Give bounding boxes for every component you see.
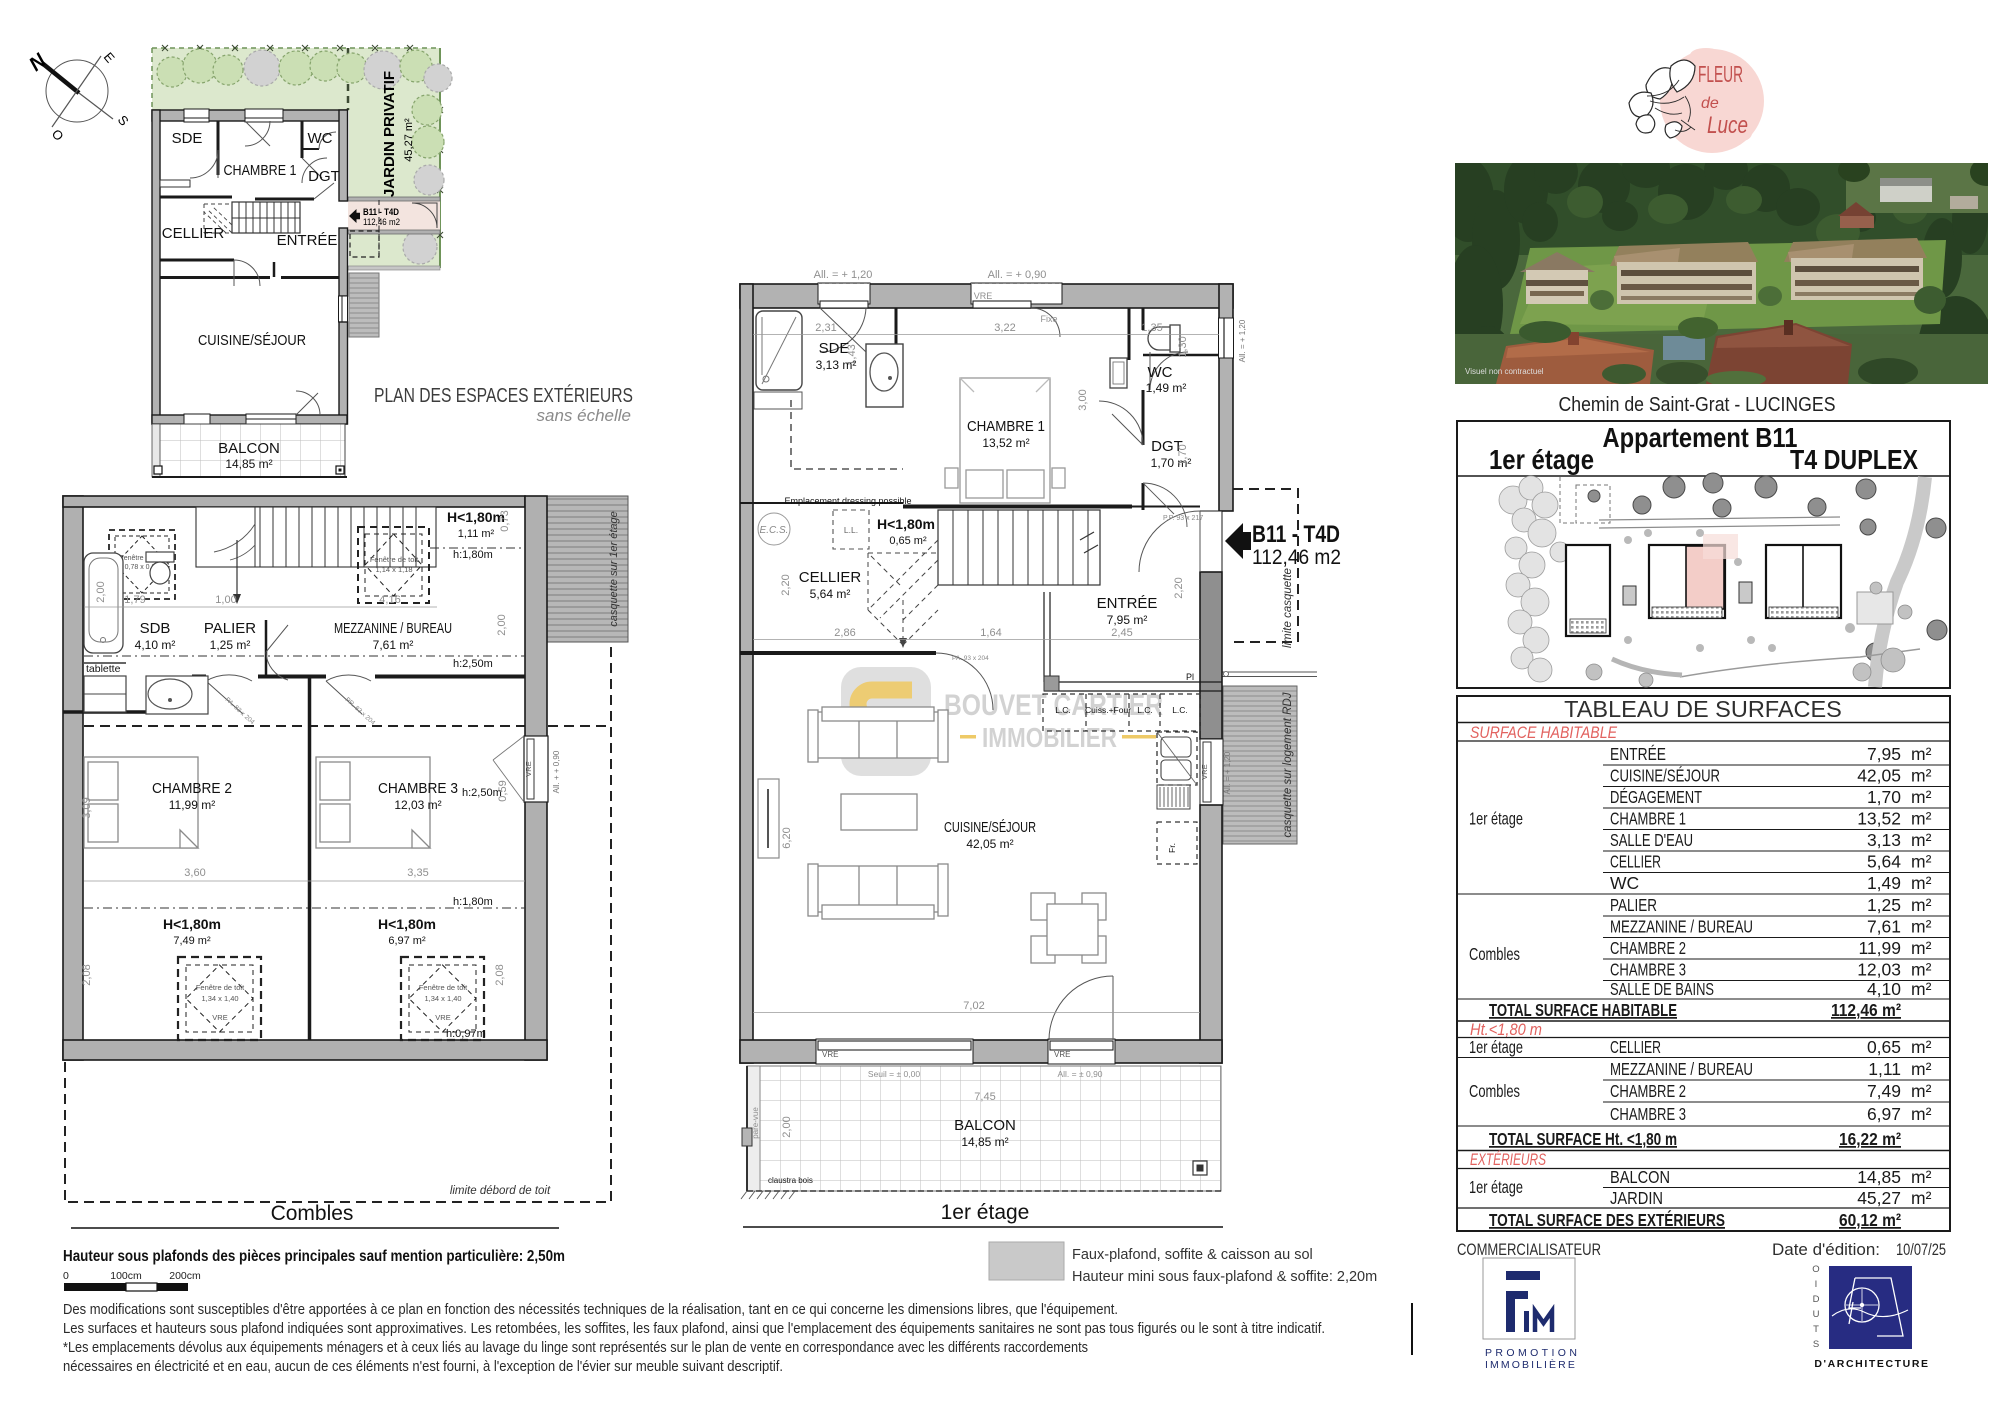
svg-text:CUISINE/SÉJOUR: CUISINE/SÉJOUR bbox=[1610, 766, 1720, 786]
svg-text:Emplacement dressing possible: Emplacement dressing possible bbox=[784, 496, 911, 506]
svg-text:SDE: SDE bbox=[172, 130, 203, 147]
svg-text:EXTÉRIEURS: EXTÉRIEURS bbox=[1470, 1150, 1546, 1169]
svg-text:TOTAL SURFACE DES EXTÉRIEURS: TOTAL SURFACE DES EXTÉRIEURS bbox=[1489, 1209, 1725, 1230]
svg-text:7,45: 7,45 bbox=[974, 1091, 995, 1103]
svg-text:1er étage: 1er étage bbox=[1469, 1177, 1523, 1197]
svg-text:1,14 x 1,18: 1,14 x 1,18 bbox=[375, 565, 412, 574]
svg-text:CUISINE/SÉJOUR: CUISINE/SÉJOUR bbox=[944, 819, 1036, 836]
svg-text:TOTAL SURFACE Ht. <1,80 m: TOTAL SURFACE Ht. <1,80 m bbox=[1489, 1129, 1677, 1149]
svg-text:m²: m² bbox=[1911, 1081, 1932, 1101]
svg-text:Cuiss.+Four: Cuiss.+Four bbox=[1085, 705, 1131, 715]
svg-text:m²: m² bbox=[1911, 960, 1932, 980]
svg-text:CELLIER: CELLIER bbox=[1610, 1037, 1661, 1057]
svg-text:U: U bbox=[1813, 1309, 1820, 1320]
svg-text:CHAMBRE 3: CHAMBRE 3 bbox=[1610, 1104, 1686, 1124]
svg-text:SURFACE HABITABLE: SURFACE HABITABLE bbox=[1470, 724, 1618, 742]
svg-text:limite casquette: limite casquette bbox=[1282, 568, 1294, 648]
svg-text:3,00: 3,00 bbox=[1077, 389, 1089, 410]
svg-text:2,86: 2,86 bbox=[834, 627, 855, 639]
svg-text:Fenêtre de toit: Fenêtre de toit bbox=[419, 983, 468, 992]
svg-text:L.C.: L.C. bbox=[1055, 705, 1071, 715]
svg-text:7,61 m²: 7,61 m² bbox=[373, 638, 414, 652]
svg-text:13,52 m²: 13,52 m² bbox=[982, 436, 1029, 450]
svg-text:m²: m² bbox=[1911, 830, 1932, 850]
svg-text:1er étage: 1er étage bbox=[1469, 809, 1523, 829]
svg-text:Date d'édition:: Date d'édition: bbox=[1772, 1240, 1880, 1259]
svg-text:6,20: 6,20 bbox=[781, 827, 793, 848]
svg-text:1,34 x 1,40: 1,34 x 1,40 bbox=[424, 994, 461, 1003]
svg-text:VRE: VRE bbox=[1054, 1050, 1070, 1059]
svg-text:m²: m² bbox=[1911, 1188, 1932, 1208]
svg-text:m²: m² bbox=[1911, 938, 1932, 958]
svg-text:6,97 m²: 6,97 m² bbox=[388, 935, 426, 947]
svg-text:Chemin de Saint-Grat - LUCINGE: Chemin de Saint-Grat - LUCINGES bbox=[1559, 394, 1836, 416]
svg-text:4,16: 4,16 bbox=[379, 594, 400, 606]
svg-text:m²: m² bbox=[1911, 1059, 1932, 1079]
svg-text:2,08: 2,08 bbox=[81, 964, 93, 985]
svg-text:T4 DUPLEX: T4 DUPLEX bbox=[1790, 444, 1918, 475]
svg-text:m²: m² bbox=[1911, 852, 1932, 872]
svg-text:BALCON: BALCON bbox=[218, 440, 280, 457]
svg-text:h:1,80m: h:1,80m bbox=[453, 549, 493, 561]
svg-text:m²: m² bbox=[1911, 1037, 1932, 1057]
svg-text:Appartement B11: Appartement B11 bbox=[1603, 422, 1798, 453]
svg-text:1,30: 1,30 bbox=[1177, 336, 1189, 357]
svg-text:42,05: 42,05 bbox=[1857, 766, 1901, 786]
svg-text:3,13: 3,13 bbox=[1867, 830, 1901, 850]
svg-text:2,08: 2,08 bbox=[494, 964, 506, 985]
svg-text:D'ARCHITECTURE: D'ARCHITECTURE bbox=[1814, 1358, 1929, 1370]
svg-text:2,20: 2,20 bbox=[1173, 577, 1185, 598]
svg-text:5,64 m²: 5,64 m² bbox=[810, 587, 851, 601]
svg-text:h:1,80m: h:1,80m bbox=[453, 896, 493, 908]
svg-text:MEZZANINE / BUREAU: MEZZANINE / BUREAU bbox=[334, 620, 452, 637]
svg-text:SALLE DE BAINS: SALLE DE BAINS bbox=[1610, 979, 1714, 999]
svg-text:2,00: 2,00 bbox=[496, 614, 508, 635]
svg-text:14,85 m²: 14,85 m² bbox=[225, 457, 272, 471]
svg-text:All. = ± 0,90: All. = ± 0,90 bbox=[1057, 1069, 1102, 1079]
svg-text:MEZZANINE / BUREAU: MEZZANINE / BUREAU bbox=[1610, 917, 1753, 937]
svg-text:CHAMBRE 2: CHAMBRE 2 bbox=[1610, 938, 1686, 958]
svg-text:CHAMBRE 3: CHAMBRE 3 bbox=[378, 780, 458, 797]
svg-text:BALCON: BALCON bbox=[1610, 1167, 1670, 1187]
svg-text:200cm: 200cm bbox=[169, 1270, 201, 1282]
svg-text:WC: WC bbox=[1610, 873, 1639, 893]
svg-text:H<1,80m: H<1,80m bbox=[877, 516, 935, 532]
svg-text:ENTRÉE: ENTRÉE bbox=[277, 232, 338, 249]
svg-text:1er étage: 1er étage bbox=[1489, 444, 1594, 475]
svg-text:3,22: 3,22 bbox=[994, 322, 1015, 334]
svg-text:de: de bbox=[1701, 95, 1719, 112]
svg-text:112,46 m2: 112,46 m2 bbox=[1252, 546, 1341, 569]
svg-text:VRE: VRE bbox=[1200, 764, 1209, 779]
svg-text:m²: m² bbox=[1911, 895, 1932, 915]
svg-text:claustra bois: claustra bois bbox=[768, 1176, 813, 1185]
svg-text:sans échelle: sans échelle bbox=[536, 406, 631, 425]
svg-text:1,35: 1,35 bbox=[1141, 322, 1162, 334]
svg-text:CHAMBRE 2: CHAMBRE 2 bbox=[152, 780, 232, 797]
svg-text:1,79: 1,79 bbox=[124, 594, 145, 606]
svg-text:3,09: 3,09 bbox=[81, 797, 93, 818]
svg-text:11,99 m²: 11,99 m² bbox=[169, 798, 215, 812]
svg-text:O: O bbox=[1812, 1264, 1819, 1275]
svg-text:7,95: 7,95 bbox=[1867, 744, 1901, 764]
svg-text:Seuil = ± 0,00: Seuil = ± 0,00 bbox=[868, 1069, 920, 1079]
svg-text:7,02: 7,02 bbox=[963, 1000, 984, 1012]
svg-text:All. + + 0,90: All. + + 0,90 bbox=[552, 750, 561, 793]
svg-text:m²: m² bbox=[1911, 744, 1932, 764]
svg-text:Hauteur sous plafonds des pièc: Hauteur sous plafonds des pièces princip… bbox=[63, 1248, 565, 1265]
svg-text:1,25: 1,25 bbox=[1867, 895, 1901, 915]
svg-text:45,27 m²: 45,27 m² bbox=[403, 118, 415, 162]
svg-text:DGT: DGT bbox=[308, 168, 340, 185]
svg-text:I: I bbox=[1815, 1279, 1818, 1290]
svg-text:B11 - T4D: B11 - T4D bbox=[1252, 521, 1340, 548]
svg-text:1er étage: 1er étage bbox=[941, 1201, 1030, 1224]
svg-text:All. = + 1,20: All. = + 1,20 bbox=[1223, 751, 1232, 794]
svg-text:13,52: 13,52 bbox=[1857, 809, 1901, 829]
svg-text:2,00: 2,00 bbox=[781, 1116, 793, 1137]
svg-text:TABLEAU DE SURFACES: TABLEAU DE SURFACES bbox=[1564, 696, 1842, 722]
svg-text:tablette: tablette bbox=[86, 663, 121, 675]
svg-text:L.C.: L.C. bbox=[1172, 705, 1188, 715]
svg-text:2,00: 2,00 bbox=[95, 581, 107, 602]
svg-text:pare-vue: pare-vue bbox=[751, 1107, 760, 1139]
svg-text:1,11 m²: 1,11 m² bbox=[458, 528, 495, 540]
svg-text:SDE: SDE bbox=[819, 340, 850, 357]
svg-text:1,43: 1,43 bbox=[846, 344, 858, 365]
svg-text:CELLIER: CELLIER bbox=[162, 225, 225, 242]
svg-text:Luce: Luce bbox=[1707, 112, 1748, 139]
svg-text:0: 0 bbox=[63, 1270, 69, 1282]
svg-text:casquette sur 1er étage: casquette sur 1er étage bbox=[608, 511, 620, 627]
svg-text:CHAMBRE 2: CHAMBRE 2 bbox=[1610, 1081, 1686, 1101]
svg-text:P.P. 93 x 217: P.P. 93 x 217 bbox=[1163, 515, 1203, 522]
svg-text:D: D bbox=[1813, 1294, 1820, 1305]
svg-text:Fr.: Fr. bbox=[1167, 843, 1177, 853]
svg-text:S: S bbox=[1813, 1339, 1819, 1350]
svg-text:limite débord de toit: limite débord de toit bbox=[450, 1185, 551, 1197]
svg-text:JARDIN PRIVATIF: JARDIN PRIVATIF bbox=[381, 71, 398, 197]
svg-text:2,31: 2,31 bbox=[815, 322, 836, 334]
svg-text:All. = + 1,20: All. = + 1,20 bbox=[1238, 319, 1247, 362]
svg-text:WC: WC bbox=[308, 130, 333, 147]
svg-text:h:0,97m: h:0,97m bbox=[446, 1028, 486, 1040]
svg-text:ENTRÉE: ENTRÉE bbox=[1097, 595, 1158, 612]
svg-text:4,10: 4,10 bbox=[1867, 979, 1901, 999]
svg-text:VRE: VRE bbox=[822, 1050, 838, 1059]
svg-text:m²: m² bbox=[1911, 1167, 1932, 1187]
svg-text:CHAMBRE 3: CHAMBRE 3 bbox=[1610, 960, 1686, 980]
svg-text:All. = + 0,90: All. = + 0,90 bbox=[988, 269, 1047, 281]
svg-text:PROMOTION: PROMOTION bbox=[1485, 1347, 1580, 1359]
svg-text:m²: m² bbox=[1911, 979, 1932, 999]
svg-text:E.C.S.: E.C.S. bbox=[760, 525, 789, 536]
svg-text:1er étage: 1er étage bbox=[1469, 1037, 1523, 1057]
svg-text:L.L.: L.L. bbox=[844, 525, 858, 535]
svg-text:CELLIER: CELLIER bbox=[1610, 852, 1661, 872]
svg-text:42,05 m²: 42,05 m² bbox=[966, 837, 1013, 851]
svg-text:1,25 m²: 1,25 m² bbox=[210, 638, 251, 652]
svg-text:h:2,50m: h:2,50m bbox=[462, 787, 502, 799]
svg-text:WC: WC bbox=[1148, 364, 1173, 381]
svg-text:TOTAL SURFACE HABITABLE: TOTAL SURFACE HABITABLE bbox=[1489, 1000, 1677, 1020]
svg-text:ENTRÉE: ENTRÉE bbox=[1610, 744, 1666, 764]
svg-text:VRE: VRE bbox=[212, 1013, 227, 1022]
svg-text:1,64: 1,64 bbox=[980, 627, 1001, 639]
svg-text:T: T bbox=[1813, 1324, 1819, 1335]
svg-text:casquette sur logement RDJ: casquette sur logement RDJ bbox=[1282, 692, 1294, 837]
svg-text:0,73: 0,73 bbox=[499, 510, 511, 531]
svg-text:H<1,80m: H<1,80m bbox=[378, 916, 436, 932]
svg-text:Les surfaces et hauteurs sous: Les surfaces et hauteurs sous plafond in… bbox=[63, 1321, 1325, 1337]
svg-text:1,11: 1,11 bbox=[1868, 1059, 1901, 1079]
svg-text:MEZZANINE / BUREAU: MEZZANINE / BUREAU bbox=[1610, 1059, 1753, 1079]
svg-text:112,46 m2: 112,46 m2 bbox=[363, 217, 400, 228]
svg-text:CHAMBRE 1: CHAMBRE 1 bbox=[1610, 809, 1686, 829]
svg-text:FLEUR: FLEUR bbox=[1698, 61, 1743, 87]
svg-text:Des modifications sont suscept: Des modifications sont susceptibles d'êt… bbox=[63, 1302, 1118, 1318]
svg-text:0,59: 0,59 bbox=[497, 780, 509, 801]
svg-text:JARDIN: JARDIN bbox=[1610, 1188, 1663, 1208]
svg-text:Fenêtre de toit: Fenêtre de toit bbox=[370, 555, 419, 564]
svg-text:L.C.: L.C. bbox=[1137, 705, 1153, 715]
svg-text:m²: m² bbox=[1911, 1104, 1932, 1124]
svg-text:1,49 m²: 1,49 m² bbox=[1146, 381, 1187, 395]
svg-text:3,60: 3,60 bbox=[184, 867, 205, 879]
svg-text:Visuel non contractuel: Visuel non contractuel bbox=[1465, 367, 1544, 376]
svg-text:0,65: 0,65 bbox=[1867, 1037, 1901, 1057]
svg-text:CUISINE/SÉJOUR: CUISINE/SÉJOUR bbox=[198, 332, 306, 349]
svg-text:Combles: Combles bbox=[1469, 1081, 1520, 1101]
svg-text:14,85: 14,85 bbox=[1857, 1167, 1901, 1187]
svg-text:14,85 m²: 14,85 m² bbox=[961, 1135, 1008, 1149]
svg-text:IMMOBILIÈRE: IMMOBILIÈRE bbox=[1485, 1358, 1577, 1371]
svg-text:BALCON: BALCON bbox=[954, 1117, 1016, 1134]
svg-text:7,49: 7,49 bbox=[1867, 1081, 1901, 1101]
svg-text:7,95 m²: 7,95 m² bbox=[1107, 613, 1148, 627]
svg-text:m²: m² bbox=[1911, 873, 1932, 893]
svg-text:1,00: 1,00 bbox=[215, 594, 236, 606]
svg-text:Combles: Combles bbox=[271, 1202, 354, 1225]
svg-text:H<1,80m: H<1,80m bbox=[163, 916, 221, 932]
svg-text:12,03: 12,03 bbox=[1857, 960, 1901, 980]
svg-text:VRE: VRE bbox=[974, 291, 993, 301]
svg-text:IMMOBILIER: IMMOBILIER bbox=[982, 722, 1117, 753]
svg-text:h:2,50m: h:2,50m bbox=[453, 658, 493, 670]
svg-text:1,70: 1,70 bbox=[1867, 787, 1901, 807]
svg-text:PALIER: PALIER bbox=[1610, 895, 1657, 915]
svg-text:4,10 m²: 4,10 m² bbox=[135, 638, 176, 652]
svg-text:45,27: 45,27 bbox=[1857, 1188, 1901, 1208]
svg-text:DÉGAGEMENT: DÉGAGEMENT bbox=[1610, 787, 1702, 807]
svg-text:12,03 m²: 12,03 m² bbox=[394, 798, 441, 812]
svg-text:VRE: VRE bbox=[524, 761, 533, 776]
svg-text:7,61: 7,61 bbox=[1867, 917, 1901, 937]
svg-text:*Les emplacements dévolus aux: *Les emplacements dévolus aux équipement… bbox=[63, 1340, 1088, 1356]
svg-text:m²: m² bbox=[1911, 787, 1932, 807]
svg-text:CELLIER: CELLIER bbox=[799, 569, 862, 586]
svg-text:Fenêtre de toit: Fenêtre de toit bbox=[196, 983, 245, 992]
svg-text:H<1,80m: H<1,80m bbox=[447, 509, 505, 525]
svg-text:2,45: 2,45 bbox=[1111, 627, 1132, 639]
svg-text:5,64: 5,64 bbox=[1867, 852, 1901, 872]
svg-text:Combles: Combles bbox=[1469, 944, 1520, 964]
svg-text:0,65 m²: 0,65 m² bbox=[889, 535, 927, 547]
svg-text:CHAMBRE 1: CHAMBRE 1 bbox=[967, 418, 1045, 435]
svg-text:Fixe: Fixe bbox=[1040, 314, 1057, 324]
svg-text:PA. 93 x 204: PA. 93 x 204 bbox=[952, 655, 989, 662]
svg-text:11,99: 11,99 bbox=[1859, 938, 1902, 958]
svg-text:2,20: 2,20 bbox=[780, 574, 792, 595]
svg-text:Pl: Pl bbox=[1186, 672, 1194, 682]
svg-text:1,34 x 1,40: 1,34 x 1,40 bbox=[201, 994, 238, 1003]
svg-text:COMMERCIALISATEUR: COMMERCIALISATEUR bbox=[1457, 1240, 1601, 1259]
svg-text:m²: m² bbox=[1911, 766, 1932, 786]
svg-text:PLAN DES ESPACES EXTÉRIEURS: PLAN DES ESPACES EXTÉRIEURS bbox=[374, 384, 633, 407]
svg-text:6,97: 6,97 bbox=[1867, 1104, 1901, 1124]
svg-text:7,49 m²: 7,49 m² bbox=[173, 935, 211, 947]
svg-text:16,22 m²: 16,22 m² bbox=[1839, 1129, 1901, 1149]
svg-text:Faux-plafond, soffite & caisso: Faux-plafond, soffite & caisson au sol bbox=[1072, 1247, 1313, 1263]
svg-text:112,46 m²: 112,46 m² bbox=[1831, 1000, 1901, 1020]
svg-text:CHAMBRE 1: CHAMBRE 1 bbox=[224, 162, 297, 179]
svg-text:All. = + 1,20: All. = + 1,20 bbox=[814, 269, 873, 281]
svg-text:100cm: 100cm bbox=[110, 1270, 142, 1282]
svg-text:PALIER: PALIER bbox=[204, 620, 256, 637]
svg-text:SALLE D'EAU: SALLE D'EAU bbox=[1610, 830, 1693, 850]
svg-text:3,35: 3,35 bbox=[407, 867, 428, 879]
svg-text:SDB: SDB bbox=[140, 620, 171, 637]
svg-text:nécessaires en électricité et: nécessaires en électricité et en eau, au… bbox=[63, 1359, 783, 1375]
svg-text:1,70: 1,70 bbox=[1177, 444, 1189, 465]
svg-text:m²: m² bbox=[1911, 809, 1932, 829]
svg-text:10/07/25: 10/07/25 bbox=[1896, 1240, 1946, 1259]
svg-text:Hauteur mini sous faux-plafond: Hauteur mini sous faux-plafond & soffite… bbox=[1072, 1269, 1377, 1285]
svg-text:VRE: VRE bbox=[435, 1013, 450, 1022]
svg-text:1,49: 1,49 bbox=[1867, 873, 1901, 893]
svg-text:60,12 m²: 60,12 m² bbox=[1839, 1210, 1901, 1230]
svg-text:m²: m² bbox=[1911, 917, 1932, 937]
